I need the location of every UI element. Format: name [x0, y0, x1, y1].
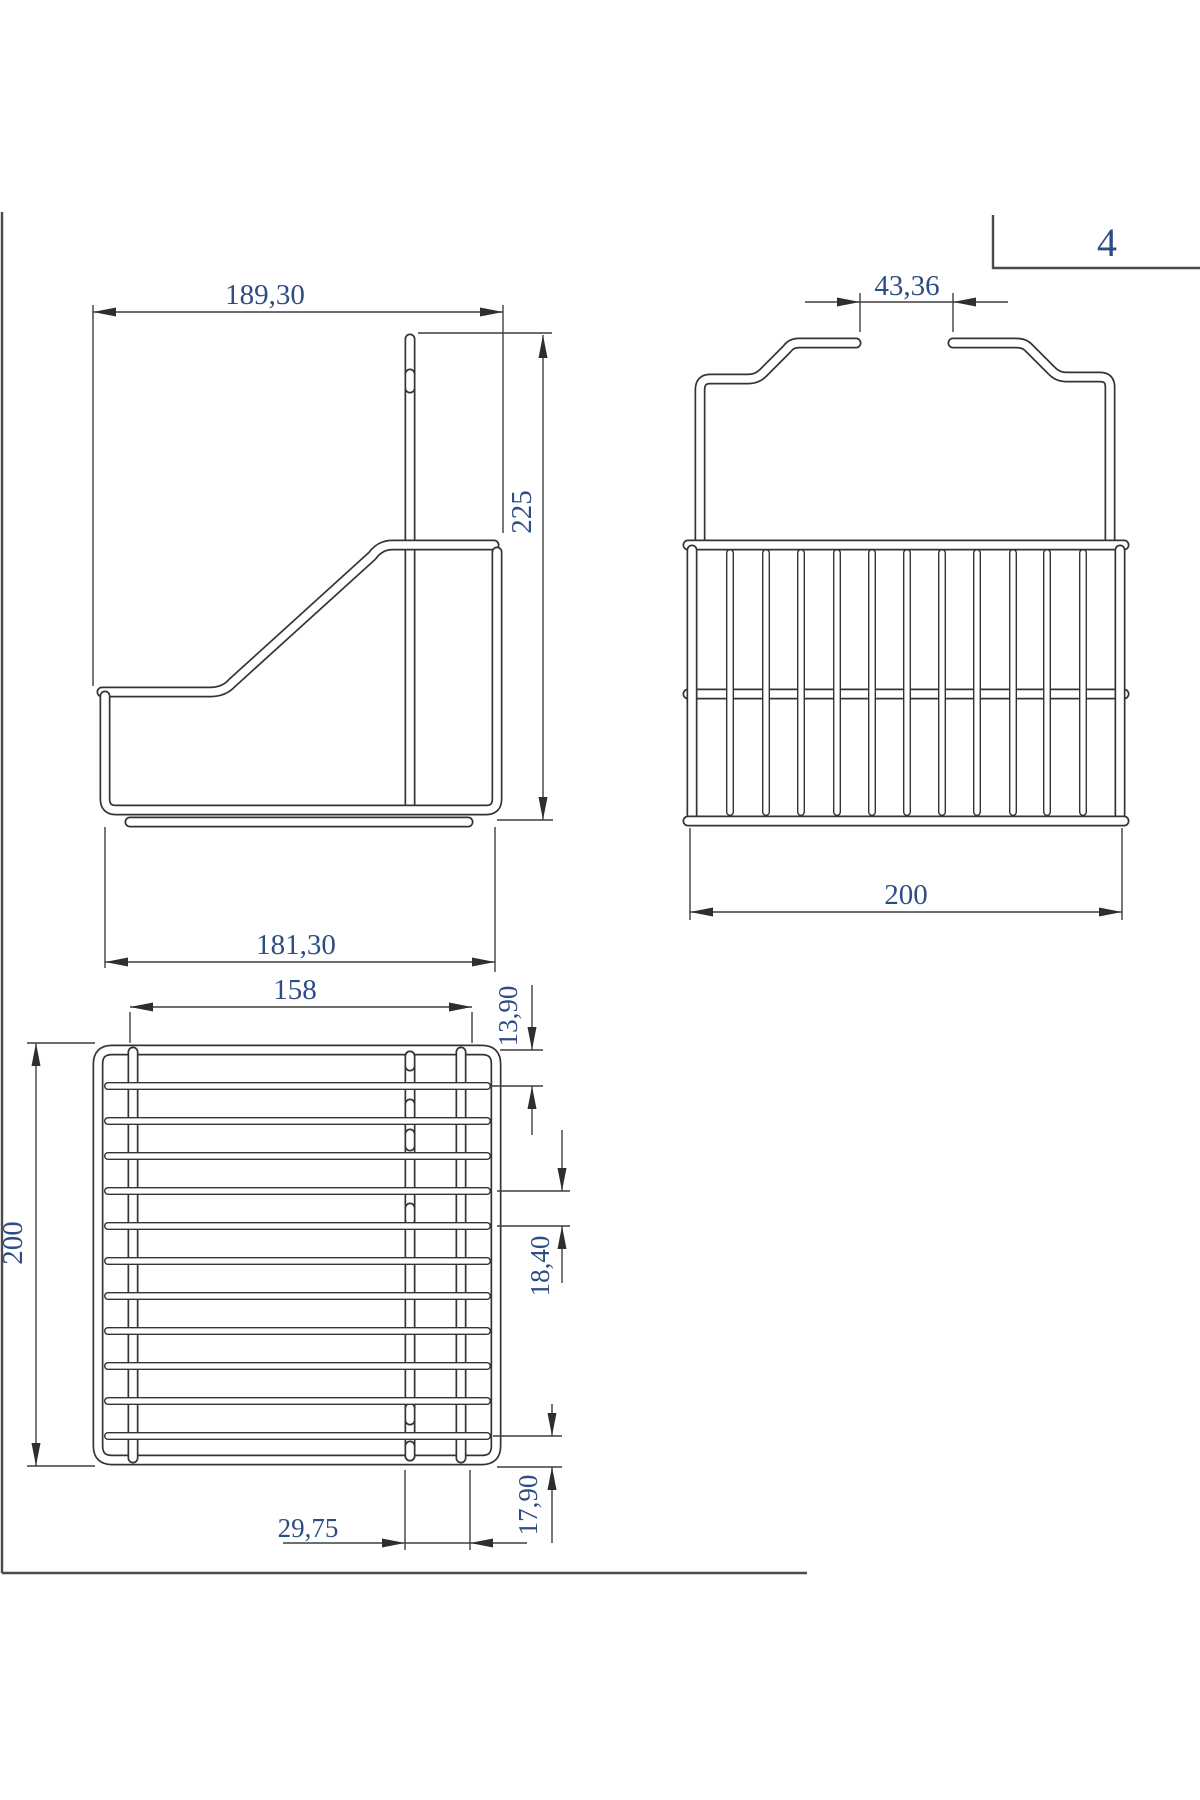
arrowhead	[382, 1539, 405, 1548]
side-frame-wire	[105, 552, 497, 810]
dim-label-center-offset: 29,75	[278, 1513, 339, 1543]
dim-label-base-depth: 181,30	[256, 929, 336, 961]
basket-wires	[108, 1086, 487, 1436]
side-view-dimensions: 189,30 225 181,30	[93, 279, 553, 972]
arrowhead	[558, 1226, 567, 1249]
top-view: 158 200 13,90 18,40	[0, 974, 570, 1550]
dim-label-inner-width: 158	[273, 974, 317, 1006]
arrowhead	[480, 308, 503, 317]
arrowhead	[449, 1003, 472, 1012]
arrowhead	[690, 908, 713, 917]
arrowhead	[472, 958, 495, 967]
arrowhead	[528, 1086, 537, 1109]
arrowhead	[953, 298, 976, 307]
arrowhead	[528, 1027, 537, 1050]
arrowhead	[548, 1413, 557, 1436]
arrowhead	[32, 1443, 41, 1466]
arrowhead	[32, 1043, 41, 1066]
drawing-canvas: 4 189,30 225 181,30	[0, 0, 1200, 1800]
dim-label-edge-offset: 17,90	[513, 1475, 543, 1536]
arrowhead	[539, 797, 548, 820]
arrowhead	[470, 1539, 493, 1548]
dim-label-overall-height: 225	[506, 490, 538, 534]
dim-label-wire-pitch: 18,40	[525, 1236, 555, 1297]
arrowhead	[539, 335, 548, 358]
dim-label-overall-depth: 200	[0, 1221, 29, 1265]
arrowhead	[1099, 908, 1122, 917]
crown-right-wire	[953, 343, 1110, 540]
basket-bars	[730, 553, 1083, 812]
page-number: 4	[1097, 220, 1117, 265]
dim-label-overall-width: 200	[884, 879, 928, 911]
side-view: 189,30 225 181,30	[93, 279, 553, 972]
arrowhead	[558, 1168, 567, 1191]
arrowhead	[548, 1467, 557, 1490]
front-view: 43,36 200	[688, 270, 1124, 920]
dim-label-hook-gap: 43,36	[874, 270, 939, 302]
arrowhead	[93, 308, 116, 317]
arrowhead	[837, 298, 860, 307]
crown-left-wire	[700, 343, 856, 540]
dim-label-overall-width: 189,30	[225, 279, 305, 311]
arrowhead	[105, 958, 128, 967]
dim-label-first-wire-offset: 13,90	[493, 986, 523, 1047]
arrowhead	[130, 1003, 153, 1012]
drawing-sheet: 4 189,30 225 181,30	[0, 0, 1200, 1800]
